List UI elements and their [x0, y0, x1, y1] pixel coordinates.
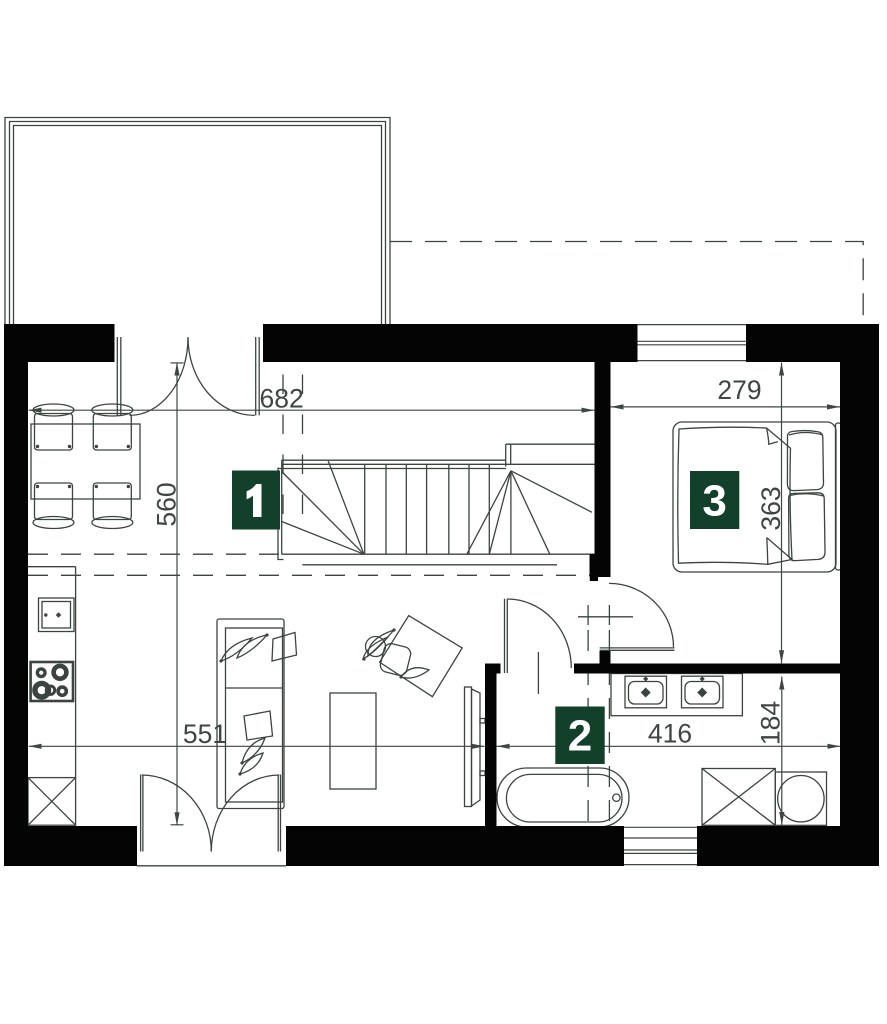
svg-text:3: 3 [702, 477, 726, 526]
svg-text:279: 279 [717, 375, 761, 405]
svg-text:551: 551 [183, 719, 227, 749]
svg-text:560: 560 [152, 482, 182, 526]
svg-text:2: 2 [568, 712, 592, 761]
svg-text:184: 184 [756, 701, 786, 745]
svg-text:682: 682 [260, 384, 304, 414]
svg-text:416: 416 [648, 719, 692, 749]
svg-text:363: 363 [756, 486, 786, 530]
